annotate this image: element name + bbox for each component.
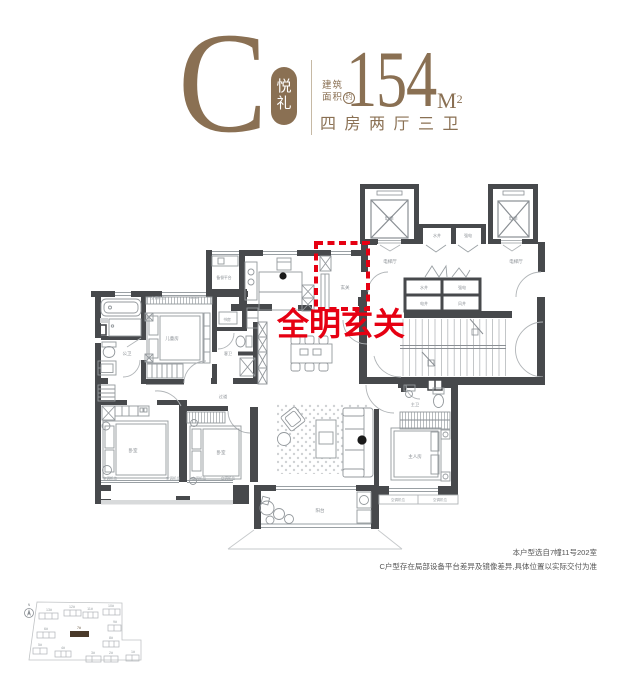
svg-text:10#: 10# (108, 604, 114, 608)
svg-text:11#: 11# (87, 607, 93, 611)
svg-text:玄关: 玄关 (341, 284, 350, 291)
svg-text:电井: 电井 (420, 300, 428, 306)
svg-text:空调机位: 空调机位 (391, 497, 405, 502)
svg-text:8#: 8# (109, 636, 113, 640)
svg-text:卧室: 卧室 (129, 447, 138, 454)
svg-text:3#: 3# (91, 651, 95, 655)
svg-text:5#: 5# (38, 643, 42, 647)
svg-text:过道: 过道 (219, 393, 228, 400)
svg-text:1#: 1# (131, 650, 135, 654)
svg-text:风井: 风井 (458, 300, 466, 306)
svg-text:6#: 6# (44, 627, 48, 631)
svg-text:9#: 9# (113, 620, 117, 624)
svg-text:水井: 水井 (420, 284, 428, 290)
svg-text:电梯: 电梯 (509, 215, 518, 222)
svg-text:本户型选自7幢11号202室: 本户型选自7幢11号202室 (513, 547, 598, 557)
svg-text:水井: 水井 (433, 232, 441, 238)
svg-text:电梯: 电梯 (385, 215, 394, 222)
svg-text:电梯厅: 电梯厅 (509, 258, 523, 265)
svg-text:阳台: 阳台 (316, 507, 325, 514)
svg-text:强电: 强电 (458, 284, 466, 290)
svg-text:2#: 2# (109, 651, 113, 655)
svg-text:公卫: 公卫 (123, 351, 132, 356)
svg-text:4#: 4# (61, 646, 65, 650)
svg-text:13#: 13# (46, 608, 52, 612)
svg-text:儿童房: 儿童房 (165, 335, 179, 342)
svg-text:书房: 书房 (223, 317, 231, 322)
svg-text:全明玄关: 全明玄关 (276, 306, 405, 342)
svg-text:主人房: 主人房 (408, 453, 422, 460)
svg-text:客卫: 客卫 (224, 350, 232, 356)
svg-text:电梯厅: 电梯厅 (383, 258, 397, 265)
svg-text:空调机位: 空调机位 (192, 476, 206, 481)
svg-text:备餐平台: 备餐平台 (216, 275, 231, 280)
svg-text:N: N (28, 603, 31, 607)
svg-text:空调机位: 空调机位 (166, 476, 180, 481)
svg-text:强电: 强电 (464, 232, 472, 238)
svg-text:卧室: 卧室 (217, 449, 226, 456)
svg-text:C户型存在局部设备平台差异及镜像差异,具体位置以实际交付为准: C户型存在局部设备平台差异及镜像差异,具体位置以实际交付为准 (380, 561, 598, 571)
svg-text:空调机位: 空调机位 (433, 497, 447, 502)
svg-text:7#: 7# (77, 626, 81, 630)
svg-text:12#: 12# (69, 605, 75, 609)
svg-text:空调机位: 空调机位 (221, 476, 235, 481)
svg-text:主卫: 主卫 (411, 401, 419, 407)
svg-text:空调机位: 空调机位 (103, 476, 117, 481)
